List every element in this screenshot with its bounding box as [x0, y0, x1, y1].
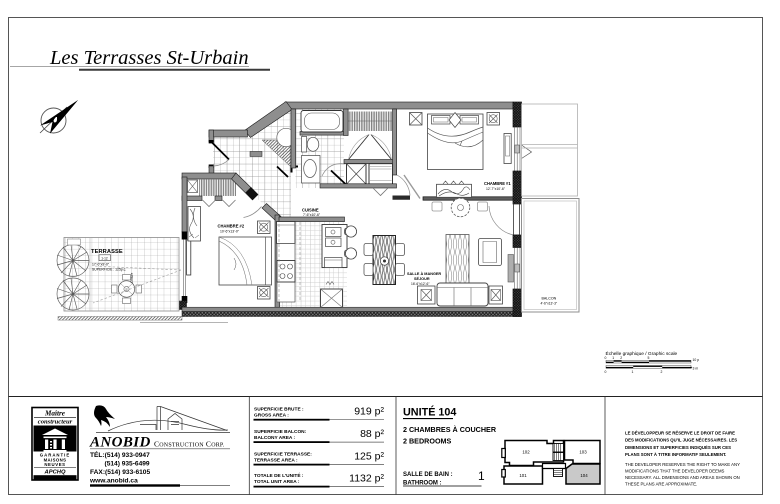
svg-text:NECESSARY. ALL DIMENSIONS AND: NECESSARY. ALL DIMENSIONS AND AREAS SHOW… [625, 475, 740, 480]
svg-text:constructeur: constructeur [38, 419, 73, 426]
svg-text:1: 1 [478, 469, 485, 483]
svg-text:TERRASSE: TERRASSE [91, 249, 123, 255]
svg-text:919 p²: 919 p² [354, 406, 384, 418]
svg-text:(514) 935-6499: (514) 935-6499 [105, 460, 150, 467]
svg-text:Échelle graphique / Graphic sc: Échelle graphique / Graphic scale [606, 350, 678, 357]
svg-text:THE DEVELOPER RESERVES THE RIG: THE DEVELOPER RESERVES THE RIGHT TO MAKE… [625, 462, 740, 467]
svg-text:SUPERFICIE BRUTE :: SUPERFICIE BRUTE : [254, 407, 304, 413]
svg-text:0: 0 [605, 370, 607, 374]
svg-text:CHAMBRE #1: CHAMBRE #1 [484, 181, 511, 186]
svg-text:1132 p²: 1132 p² [349, 473, 384, 485]
svg-text:4'-6"x13'-3": 4'-6"x13'-3" [541, 302, 558, 306]
svg-text:2 CHAMBRES À COUCHER: 2 CHAMBRES À COUCHER [403, 425, 497, 434]
svg-text:125 p²: 125 p² [354, 451, 384, 463]
svg-text:SALLE À MANGER: SALLE À MANGER [407, 271, 441, 276]
svg-text:88 p²: 88 p² [360, 428, 384, 440]
svg-text:1: 1 [612, 356, 614, 360]
svg-text:104: 104 [580, 473, 588, 478]
svg-text:THESE PLANS ARE APPROXIMATE.: THESE PLANS ARE APPROXIMATE. [625, 482, 697, 487]
svg-text:BATHROOM :: BATHROOM : [403, 480, 442, 486]
svg-text:TÉL:(514) 933-0947: TÉL:(514) 933-0947 [90, 450, 150, 459]
svg-text:16'-6"x12'-6": 16'-6"x12'-6" [411, 282, 430, 286]
svg-text:UNITÉ 104: UNITÉ 104 [403, 406, 456, 419]
svg-text:BALCONY AREA :: BALCONY AREA : [254, 435, 296, 441]
svg-text:TOTAL UNIT AREA :: TOTAL UNIT AREA : [254, 479, 300, 485]
svg-text:FAX:(514) 933-6105: FAX:(514) 933-6105 [90, 469, 150, 476]
svg-text:Clôture: Clôture [130, 272, 134, 283]
svg-text:2 BEDROOMS: 2 BEDROOMS [403, 437, 452, 446]
svg-text:1-12: 1-12 [101, 256, 108, 260]
svg-text:10 p: 10 p [693, 358, 700, 362]
svg-text:2: 2 [620, 356, 622, 360]
svg-text:0: 0 [605, 356, 607, 360]
svg-text:12'-7"x10'-6": 12'-7"x10'-6" [486, 187, 506, 191]
svg-text:1: 1 [632, 370, 634, 374]
svg-text:PLANS SONT À TITRE INFORMATIF: PLANS SONT À TITRE INFORMATIF SEULEMENT. [625, 452, 726, 457]
svg-text:NEUVES: NEUVES [44, 462, 65, 467]
svg-text:5: 5 [648, 356, 650, 360]
svg-text:103: 103 [579, 450, 587, 455]
svg-text:CHAMBRE #2: CHAMBRE #2 [218, 224, 245, 229]
svg-text:101: 101 [519, 473, 527, 478]
svg-text:DES MODIFICATIONS QU'IL JUGE N: DES MODIFICATIONS QU'IL JUGE NÉCESSAIRES… [625, 438, 737, 443]
svg-text:Q R: Q R [52, 476, 59, 480]
svg-text:MODIFICATIONS THAT THE DEVELOP: MODIFICATIONS THAT THE DEVELOPER DEEMS [625, 469, 725, 474]
svg-text:DIMENSIONS ET SUPERFICIES INDI: DIMENSIONS ET SUPERFICIES INDIQUÉS SUR C… [625, 445, 731, 450]
svg-text:102: 102 [522, 450, 530, 455]
svg-text:17'-0"x9'-0": 17'-0"x9'-0" [92, 263, 110, 267]
svg-text:LE DÉVELOPPEUR SE RÉSERVE LE D: LE DÉVELOPPEUR SE RÉSERVE LE DROIT DE FA… [625, 431, 735, 436]
svg-text:SALLE DE BAIN :: SALLE DE BAIN : [403, 472, 453, 478]
svg-text:www.anobid.ca: www.anobid.ca [89, 478, 138, 485]
svg-text:SUPERFICIE : 125p.c.: SUPERFICIE : 125p.c. [92, 268, 126, 272]
svg-text:SUPERFICIE TERRASSE:: SUPERFICIE TERRASSE: [254, 452, 312, 458]
svg-text:GROSS AREA :: GROSS AREA : [254, 413, 289, 419]
svg-text:APCHQ: APCHQ [44, 470, 66, 476]
svg-text:2: 2 [661, 370, 663, 374]
svg-text:ANOBID: ANOBID [89, 435, 151, 451]
svg-text:7'-6"x10'-6": 7'-6"x10'-6" [303, 213, 321, 217]
svg-text:SÉJOUR: SÉJOUR [414, 276, 430, 281]
svg-text:Les Terrasses St-Urbain: Les Terrasses St-Urbain [49, 47, 249, 69]
svg-text:TERRASSE AREA :: TERRASSE AREA : [254, 458, 298, 464]
svg-text:10'-6"x13'-0": 10'-6"x13'-0" [220, 230, 240, 234]
svg-text:CUISINE: CUISINE [302, 208, 319, 213]
svg-text:Maître: Maître [44, 410, 66, 418]
svg-text:SUPERFICIE BALCON:: SUPERFICIE BALCON: [254, 429, 307, 435]
svg-text:BALCON: BALCON [542, 297, 557, 301]
svg-text:3 m: 3 m [693, 367, 699, 371]
